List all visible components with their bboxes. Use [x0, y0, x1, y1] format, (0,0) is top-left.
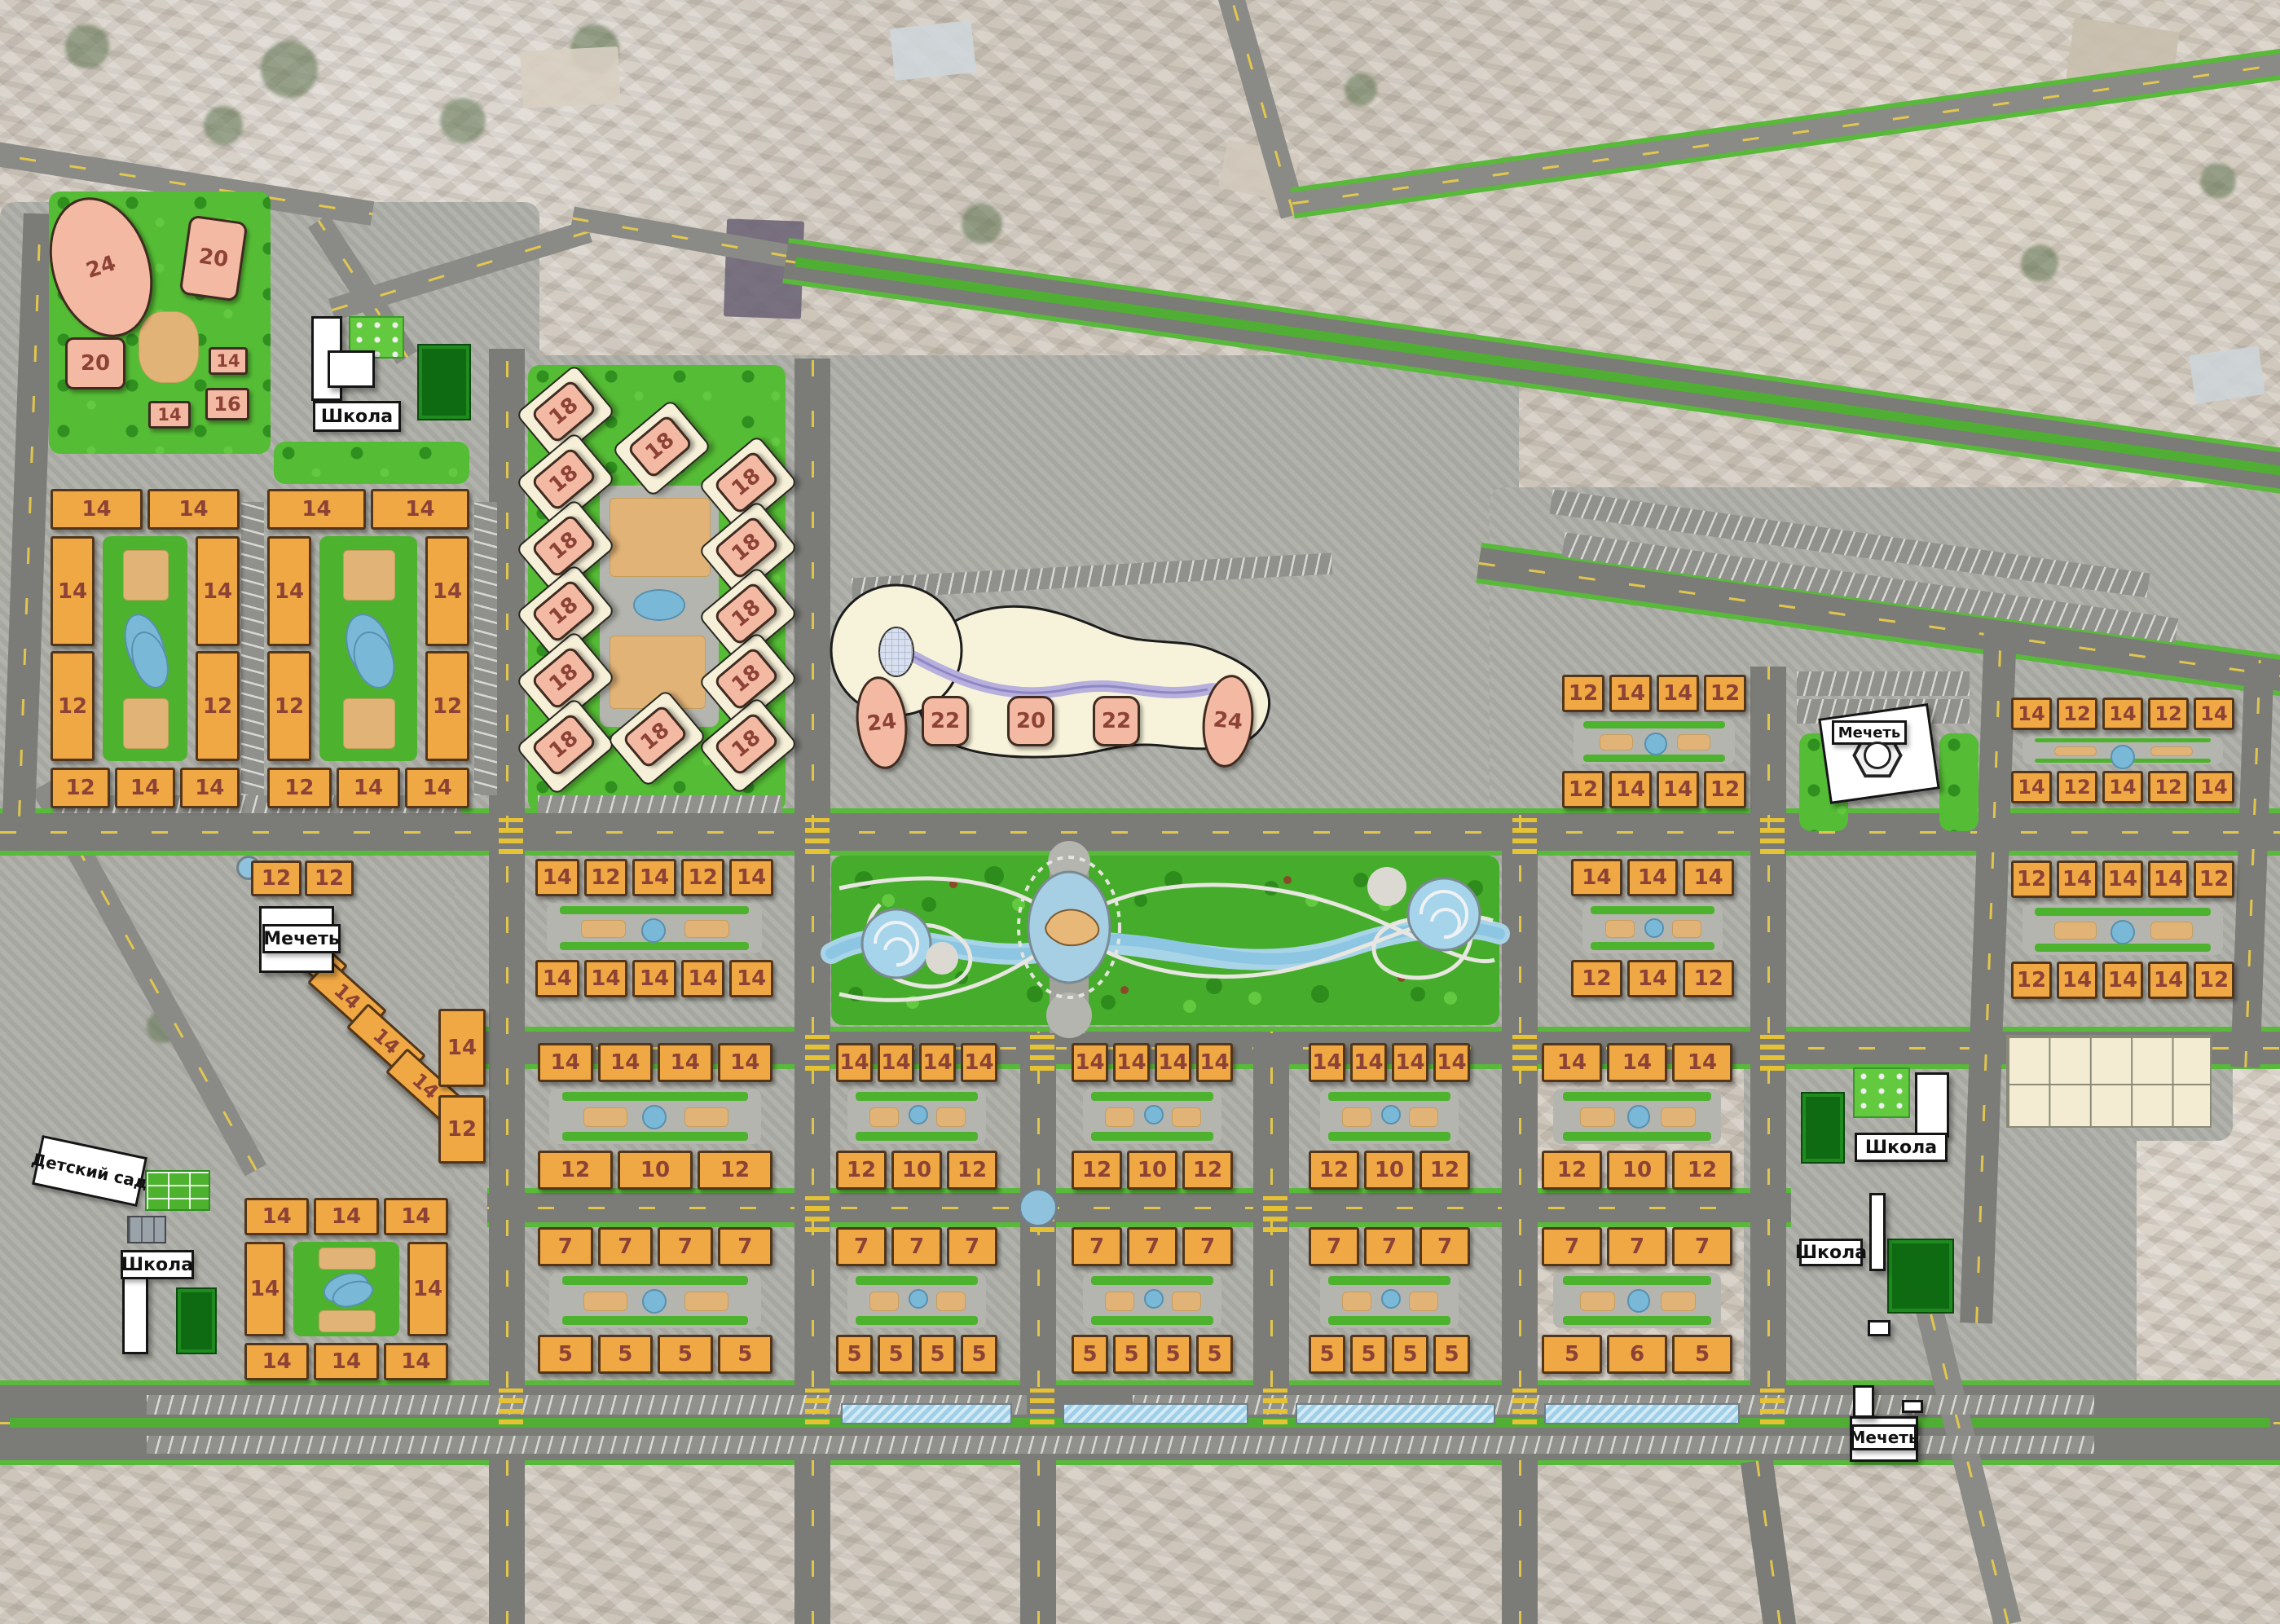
central-park — [831, 856, 1499, 1025]
residential-building: 12 — [836, 1151, 887, 1190]
residential-building: 12 — [251, 860, 302, 896]
floor-count-label: 14 — [1395, 1052, 1424, 1073]
residential-building: 14 — [1627, 859, 1679, 896]
courtyard-lawn — [560, 906, 749, 914]
crosswalk — [499, 818, 523, 854]
floor-count-label: 5 — [678, 1344, 693, 1365]
residential-building: 7 — [538, 1227, 593, 1266]
floor-count-label: 10 — [1138, 1160, 1167, 1181]
boulevard-canal — [841, 1403, 1012, 1424]
residential-building: 14 — [1350, 1043, 1387, 1082]
courtyard-lawn — [562, 1276, 749, 1285]
residential-building: 12 — [51, 768, 110, 808]
courtyard — [1320, 1089, 1459, 1144]
floor-count-label: 7 — [909, 1236, 924, 1257]
floor-count-label: 14 — [1312, 1052, 1341, 1073]
residential-building: 14 — [1072, 1043, 1108, 1082]
street — [489, 1460, 525, 1624]
crosswalk — [1512, 818, 1537, 854]
floor-count-label: 7 — [1382, 1236, 1397, 1257]
play-area — [1677, 734, 1711, 750]
courtyard — [319, 536, 417, 761]
crosswalk — [1263, 1196, 1287, 1232]
play-area — [684, 1292, 728, 1311]
satellite-trees — [261, 41, 318, 98]
floor-count-label: 12 — [1193, 1160, 1222, 1181]
floor-count-label: 14 — [640, 968, 669, 989]
crosswalk — [805, 1389, 830, 1424]
play-area — [1661, 1107, 1696, 1127]
play-area — [1580, 1107, 1615, 1127]
residential-building: 12 — [2057, 698, 2097, 730]
satellite-trees — [204, 106, 243, 145]
residential-building: 14 — [632, 960, 676, 997]
courtyard-lawn — [562, 1092, 749, 1101]
courtyard-lawn — [1091, 1316, 1213, 1325]
residential-building: 12 — [2194, 962, 2234, 999]
floor-count-label: 18 — [728, 661, 764, 696]
residential-building: 14 — [1309, 1043, 1345, 1082]
boulevard-canal — [1544, 1403, 1740, 1424]
floor-count-label: 12 — [1710, 683, 1740, 704]
courtyard — [1574, 719, 1735, 764]
residential-building: 10 — [891, 1151, 942, 1190]
floor-count-label: 5 — [1082, 1344, 1097, 1365]
tower-building: 20 — [65, 337, 125, 389]
floor-count-label: 18 — [728, 726, 764, 761]
floor-count-label: 14 — [2108, 869, 2137, 890]
floor-count-label: 18 — [546, 727, 582, 762]
residential-building: 12 — [2148, 698, 2189, 730]
floor-count-label: 12 — [1688, 1160, 1717, 1181]
floor-count-label: 12 — [203, 696, 232, 717]
play-area — [936, 1292, 966, 1311]
courtyard — [1083, 1273, 1221, 1328]
residential-building: 14 — [1607, 1043, 1667, 1082]
residential-building: 12 — [438, 1095, 486, 1164]
crosswalk — [1263, 1389, 1287, 1424]
floor-count-label: 5 — [888, 1344, 903, 1365]
play-area — [1580, 1292, 1615, 1311]
residential-building: 14 — [2057, 962, 2097, 999]
residential-building: 14 — [1657, 675, 1699, 712]
residential-building: 7 — [1542, 1227, 1602, 1266]
residential-building: 12 — [267, 651, 311, 761]
courtyard — [103, 536, 187, 761]
residential-building: 6 — [1607, 1335, 1667, 1374]
residential-building: 14 — [919, 1043, 956, 1082]
satellite-roof — [2189, 345, 2265, 403]
courtyard — [549, 1089, 761, 1144]
floor-count-label: 14 — [1663, 683, 1692, 704]
residential-building: 14 — [2011, 771, 2052, 803]
courtyard-lawn — [1091, 1132, 1213, 1141]
mosque-bottomright-building — [1868, 1320, 1890, 1336]
play-area — [1172, 1292, 1201, 1311]
residential-building: 14 — [196, 536, 240, 646]
floor-count-label: 14 — [433, 581, 462, 602]
floor-count-label: 7 — [1437, 1236, 1452, 1257]
play-area — [343, 698, 395, 750]
floor-count-label: 14 — [1616, 779, 1645, 800]
floor-count-label: 14 — [2109, 777, 2136, 797]
residential-building: 14 — [51, 489, 143, 530]
floor-count-label: 12 — [591, 867, 620, 888]
residential-building: 5 — [598, 1335, 654, 1374]
school-bottomright-label: Школа — [1799, 1239, 1863, 1266]
towers-courtyard — [600, 486, 719, 727]
play-area — [123, 698, 169, 750]
residential-building: 12 — [305, 860, 354, 896]
residential-building: 14 — [2148, 860, 2189, 898]
floor-count-label: 18 — [546, 528, 582, 563]
residential-building: 12 — [1309, 1151, 1359, 1190]
floor-count-label: 7 — [1565, 1236, 1579, 1257]
floor-count-label: 5 — [1207, 1344, 1221, 1365]
residential-building: 14 — [598, 1043, 654, 1082]
floor-count-label: 14 — [250, 1279, 279, 1300]
play-area — [2054, 746, 2096, 757]
satellite-trees — [1345, 73, 1377, 106]
residential-building: 14 — [314, 1343, 378, 1380]
floor-count-label: 12 — [66, 777, 95, 799]
play-area — [2150, 922, 2192, 940]
park-axis-plaza-bottom — [1046, 992, 1092, 1038]
residential-building: 12 — [1672, 1151, 1732, 1190]
lawn — [274, 442, 469, 484]
floor-count-label: 24 — [1213, 709, 1244, 733]
floor-count-label: 14 — [332, 1351, 361, 1372]
floor-count-label: 14 — [203, 581, 232, 602]
residential-building: 14 — [2194, 771, 2234, 803]
floor-count-label: 12 — [2199, 869, 2229, 890]
floor-count-label: 12 — [2017, 869, 2046, 890]
residential-building: 12 — [2057, 771, 2097, 803]
play-area — [869, 1107, 899, 1127]
residential-building: 14 — [1392, 1043, 1428, 1082]
courtyard — [847, 1089, 986, 1144]
floor-count-label: 14 — [881, 1052, 910, 1073]
floor-count-label: 14 — [610, 1052, 640, 1073]
courtyard-lawn — [1091, 1092, 1213, 1101]
floor-count-label: 12 — [262, 868, 291, 889]
street — [794, 359, 830, 1387]
school-bottomright-building — [1869, 1193, 1886, 1271]
residential-building: 5 — [1392, 1335, 1428, 1374]
crosswalk — [1760, 1389, 1785, 1424]
residential-building: 14 — [2102, 860, 2143, 898]
school-bottomleft-label: Школа — [121, 1250, 194, 1279]
floor-count-label: 20 — [197, 246, 229, 271]
residential-building: 14 — [2011, 698, 2052, 730]
floor-count-label: 24 — [866, 711, 898, 735]
residential-building: 12 — [538, 1151, 613, 1190]
residential-building: 5 — [919, 1335, 956, 1374]
floor-count-label: 12 — [1430, 1160, 1459, 1181]
floor-count-label: 12 — [447, 1119, 477, 1140]
floor-count-label: 14 — [543, 968, 572, 989]
floor-count-label: 14 — [551, 1052, 580, 1073]
courtyard — [293, 1242, 399, 1336]
residential-building: 14 — [718, 1043, 773, 1082]
floor-count-label: 12 — [689, 867, 718, 888]
school-right-label: Школа — [1855, 1133, 1948, 1162]
park-plaza-right — [1367, 867, 1406, 906]
residential-building: 14 — [729, 859, 773, 896]
courtyard-fountain — [1627, 1105, 1651, 1129]
park-spiral-pond-left — [862, 909, 931, 978]
residential-building: 12 — [1182, 1151, 1233, 1190]
floor-count-label: 7 — [854, 1236, 869, 1257]
floor-count-label: 10 — [640, 1160, 670, 1181]
residential-building: 12 — [698, 1151, 772, 1190]
crosswalk — [1030, 1389, 1054, 1424]
sports-field — [1887, 1239, 1954, 1314]
crosswalk — [499, 1389, 523, 1424]
street — [794, 1460, 830, 1624]
tower-building: 22 — [1093, 696, 1140, 746]
play-area — [2150, 746, 2192, 757]
courtyard-lawn — [1563, 1092, 1710, 1101]
residential-building: 14 — [658, 1043, 713, 1082]
courtyard-lawn — [1091, 1276, 1213, 1285]
floor-count-label: 18 — [728, 596, 764, 631]
floor-count-label: 14 — [332, 1206, 361, 1227]
satellite-roof — [520, 46, 620, 108]
residential-building: 5 — [1350, 1335, 1387, 1374]
floor-count-label: 14 — [216, 353, 240, 370]
residential-building: 12 — [1704, 675, 1746, 712]
floor-count-label: 14 — [1663, 779, 1692, 800]
residential-building: 7 — [1127, 1227, 1177, 1266]
playground — [1853, 1067, 1910, 1118]
floor-count-label: 14 — [640, 867, 669, 888]
residential-building: 14 — [314, 1198, 378, 1235]
residential-building: 14 — [1609, 675, 1652, 712]
master-plan-map: 1414121414141214121414121414141214121214… — [0, 0, 2280, 1624]
school-topleft-label: Школа — [313, 401, 401, 432]
floor-count-label: 18 — [546, 394, 582, 429]
floor-count-label: 14 — [1688, 1052, 1717, 1073]
residential-building: 14 — [244, 1242, 285, 1336]
courtyard — [1553, 1089, 1721, 1144]
floor-count-label: 14 — [730, 1052, 759, 1073]
mosque-bottomright-label: Мечеть — [1851, 1424, 1917, 1450]
play-area — [583, 1292, 627, 1311]
residential-building: 12 — [1683, 960, 1734, 997]
courtyard-fountain — [641, 918, 666, 943]
floor-count-label: 14 — [1622, 1052, 1652, 1073]
residential-building: 10 — [1364, 1151, 1415, 1190]
courtyard-lawn — [1328, 1276, 1450, 1285]
floor-count-label: 12 — [720, 1160, 750, 1181]
residential-building: 14 — [1433, 1043, 1470, 1082]
residential-building: 14 — [538, 1043, 593, 1082]
residential-building: 14 — [1683, 859, 1734, 896]
lawn — [1939, 733, 1978, 831]
street — [1741, 1459, 1796, 1624]
floor-count-label: 12 — [1319, 1160, 1349, 1181]
floor-count-label: 10 — [1622, 1160, 1652, 1181]
play-area — [583, 1107, 627, 1127]
play-area — [1105, 1292, 1134, 1311]
parking-lot — [538, 795, 782, 813]
residential-building: 12 — [681, 859, 725, 896]
mosque-dome-circle — [1864, 742, 1891, 769]
floor-count-label: 14 — [81, 499, 111, 520]
floor-count-label: 14 — [447, 1037, 477, 1058]
courtyard — [1582, 903, 1723, 953]
residential-building: 14 — [1196, 1043, 1233, 1082]
floor-count-label: 10 — [1375, 1160, 1404, 1181]
play-area — [1409, 1107, 1438, 1127]
floor-count-label: 7 — [678, 1236, 693, 1257]
residential-building: 7 — [1072, 1227, 1122, 1266]
courtyard-fountain — [642, 1289, 667, 1314]
residential-building: 14 — [729, 960, 773, 997]
residential-building: 10 — [1607, 1151, 1667, 1190]
floor-count-label: 14 — [1075, 1052, 1104, 1073]
residential-building: 5 — [836, 1335, 873, 1374]
boulevard-canal — [1296, 1403, 1495, 1424]
floor-count-label: 12 — [284, 777, 314, 799]
residential-building: 14 — [535, 859, 579, 896]
satellite-trees — [440, 98, 486, 143]
floor-count-label: 18 — [642, 429, 678, 464]
residential-building: 7 — [718, 1227, 773, 1266]
school-topleft-building — [328, 350, 375, 388]
parking-canopy — [127, 1216, 166, 1243]
floor-count-label: 14 — [2154, 869, 2183, 890]
crosswalk — [1512, 1389, 1537, 1424]
floor-count-label: 14 — [2062, 970, 2092, 991]
floor-count-label: 14 — [409, 1070, 442, 1102]
residential-building: 12 — [947, 1151, 997, 1190]
residential-building: 14 — [632, 859, 676, 896]
courtyard-lawn — [562, 1132, 749, 1141]
boulevard-canal — [1063, 1403, 1248, 1424]
residential-building: 14 — [244, 1198, 309, 1235]
floor-count-label: 24 — [84, 253, 118, 282]
floor-count-label: 7 — [618, 1236, 632, 1257]
courtyard-lawn — [856, 1316, 978, 1325]
satellite-trees — [65, 24, 109, 68]
park-plaza-left — [926, 942, 958, 975]
courtyard-lawn — [1591, 942, 1714, 950]
residential-building: 7 — [891, 1227, 942, 1266]
courtyard-lawn — [1591, 906, 1714, 914]
floor-count-label: 7 — [558, 1236, 573, 1257]
residential-building: 14 — [2102, 698, 2143, 730]
crosswalk — [1760, 1035, 1785, 1071]
floor-count-label: 18 — [637, 719, 673, 754]
school-right-building — [1915, 1072, 1949, 1138]
floor-count-label: 14 — [58, 581, 87, 602]
residential-building: 14 — [1672, 1043, 1732, 1082]
courtyard-fountain — [1381, 1289, 1401, 1309]
play-area — [684, 920, 729, 938]
courtyard-fountain — [909, 1105, 928, 1124]
courtyard-lawn — [1583, 721, 1725, 728]
courtyard-fountain — [2111, 920, 2135, 944]
floor-count-label: 12 — [1710, 779, 1740, 800]
floor-count-label: 5 — [737, 1344, 752, 1365]
mosque-right-label: Мечеть — [1832, 720, 1907, 745]
floor-count-label: 7 — [1145, 1236, 1160, 1257]
floor-count-label: 5 — [618, 1344, 632, 1365]
play-area — [1661, 1292, 1696, 1311]
crosswalk — [805, 818, 830, 854]
residential-building: 5 — [1155, 1335, 1191, 1374]
floor-count-label: 14 — [839, 1052, 869, 1073]
tower-building: 20 — [179, 214, 249, 301]
floor-count-label: 12 — [1694, 968, 1723, 989]
sports-field — [176, 1287, 217, 1354]
play-area — [319, 1248, 376, 1270]
floor-count-label: 14 — [1158, 1052, 1187, 1073]
sports-field — [1801, 1092, 1845, 1164]
parking-lot — [1797, 671, 1970, 696]
floor-count-label: 5 — [1565, 1344, 1579, 1365]
residential-building: 12 — [1571, 960, 1622, 997]
floor-count-label: 14 — [413, 1279, 442, 1300]
street — [1750, 667, 1786, 1387]
residential-building: 7 — [1364, 1227, 1415, 1266]
residential-building: 5 — [1433, 1335, 1470, 1374]
floor-count-label: 7 — [1089, 1236, 1104, 1257]
play-area — [123, 550, 169, 601]
residential-building: 14 — [425, 536, 469, 646]
floor-count-label: 14 — [275, 581, 304, 602]
residential-building: 14 — [535, 960, 579, 997]
courtyard-fountain — [1627, 1289, 1651, 1313]
courtyard — [2023, 737, 2223, 764]
residential-building: 14 — [878, 1043, 914, 1082]
floor-count-label: 5 — [930, 1344, 944, 1365]
residential-building: 14 — [1657, 771, 1699, 808]
courtyard-lawn — [1583, 755, 1725, 762]
floor-count-label: 14 — [2018, 777, 2045, 797]
street — [487, 1193, 1791, 1222]
courtyard-lawn — [562, 1316, 749, 1325]
residential-building: 5 — [1542, 1335, 1602, 1374]
residential-building: 14 — [1609, 771, 1652, 808]
floor-count-label: 14 — [130, 777, 160, 799]
residential-building: 7 — [1672, 1227, 1732, 1266]
tower-building: 16 — [205, 388, 249, 420]
floor-count-label: 12 — [561, 1160, 590, 1181]
street — [1502, 1460, 1538, 1624]
residential-building: 14 — [2102, 771, 2143, 803]
fountain-pond — [1019, 1188, 1058, 1227]
floor-count-label: 14 — [401, 1351, 430, 1372]
courtyard-lawn — [856, 1276, 978, 1285]
tower-building: 14 — [148, 401, 191, 429]
courtyard — [1553, 1273, 1721, 1328]
floor-count-label: 14 — [1116, 1052, 1146, 1073]
courtyard-lawn — [2035, 738, 2211, 742]
residential-building: 14 — [51, 536, 95, 646]
floor-count-label: 7 — [1200, 1236, 1215, 1257]
floor-count-label: 14 — [1638, 867, 1667, 888]
residential-building: 12 — [1704, 771, 1746, 808]
courtyard-fountain — [1144, 1105, 1164, 1124]
residential-building: 14 — [371, 489, 469, 530]
floor-count-label: 12 — [433, 696, 462, 717]
courtyard-lawn — [1563, 1276, 1710, 1285]
floor-count-label: 5 — [1361, 1344, 1375, 1365]
play-area — [1342, 1292, 1371, 1311]
